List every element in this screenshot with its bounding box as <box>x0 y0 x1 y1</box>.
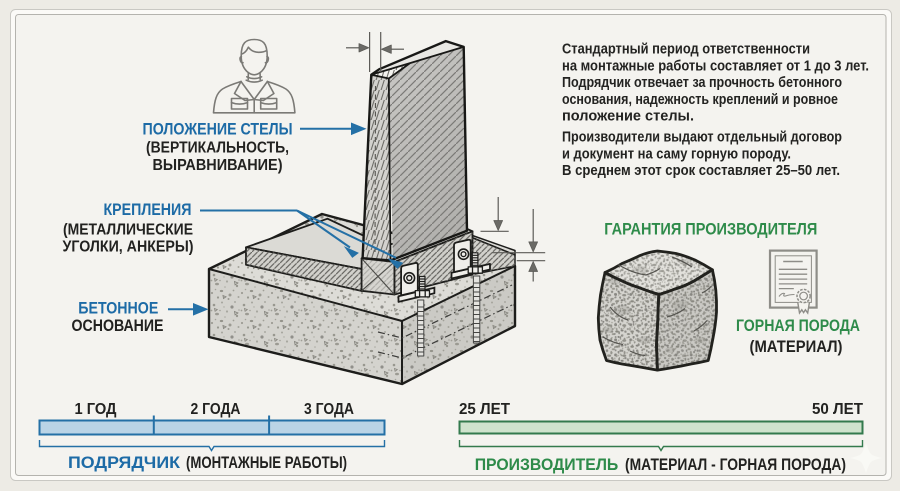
svg-text:В среднем этот срок составляе: В среднем этот срок составляет 25–50 лет… <box>562 163 840 179</box>
svg-text:(МОНТАЖНЫЕ РАБОТЫ): (МОНТАЖНЫЕ РАБОТЫ) <box>186 453 347 472</box>
svg-text:(МАТЕРИАЛ): (МАТЕРИАЛ) <box>750 337 843 356</box>
svg-text:1 ГОД: 1 ГОД <box>75 401 117 418</box>
svg-text:ПОДРЯДЧИК: ПОДРЯДЧИК <box>68 453 181 472</box>
svg-text:КРЕПЛЕНИЯ: КРЕПЛЕНИЯ <box>104 201 192 219</box>
svg-text:ОСНОВАНИЕ: ОСНОВАНИЕ <box>72 317 164 335</box>
svg-text:ПОЛОЖЕНИЕ СТЕЛЫ: ПОЛОЖЕНИЕ СТЕЛЫ <box>143 121 293 139</box>
svg-text:(МАТЕРИАЛ - ГОРНАЯ ПОРОДА): (МАТЕРИАЛ - ГОРНАЯ ПОРОДА) <box>625 455 846 474</box>
svg-text:(МЕТАЛЛИЧЕСКИЕ: (МЕТАЛЛИЧЕСКИЕ <box>63 222 193 239</box>
svg-text:25 ЛЕТ: 25 ЛЕТ <box>459 401 511 418</box>
svg-text:ВЫРАВНИВАНИЕ): ВЫРАВНИВАНИЕ) <box>153 157 283 174</box>
svg-text:ГОРНАЯ ПОРОДА: ГОРНАЯ ПОРОДА <box>736 316 860 335</box>
svg-text:и документ на саму горную поро: и документ на саму горную породу. <box>562 146 791 162</box>
svg-text:УГОЛКИ, АНКЕРЫ): УГОЛКИ, АНКЕРЫ) <box>63 239 194 256</box>
svg-text:3 ГОДА: 3 ГОДА <box>304 401 354 418</box>
svg-text:ГАРАНТИЯ ПРОИЗВОДИТЕЛЯ: ГАРАНТИЯ ПРОИЗВОДИТЕЛЯ <box>604 220 817 239</box>
svg-text:Производители выдают отдельный: Производители выдают отдельный договор <box>562 130 842 146</box>
svg-text:на монтажные работы составляет: на монтажные работы составляет от 1 до 3… <box>562 58 869 74</box>
svg-text:Подрядчик отвечает за прочност: Подрядчик отвечает за прочность бетонног… <box>562 75 842 91</box>
svg-text:(ВЕРТИКАЛЬНОСТЬ,: (ВЕРТИКАЛЬНОСТЬ, <box>146 140 289 157</box>
svg-text:основания, надежность креплени: основания, надежность креплений и ровное <box>562 92 838 108</box>
svg-text:положение стелы.: положение стелы. <box>562 109 694 125</box>
svg-text:50 ЛЕТ: 50 ЛЕТ <box>812 401 864 418</box>
svg-text:БЕТОННОЕ: БЕТОННОЕ <box>78 300 158 318</box>
svg-text:ПРОИЗВОДИТЕЛЬ: ПРОИЗВОДИТЕЛЬ <box>475 455 619 474</box>
svg-text:2 ГОДА: 2 ГОДА <box>191 401 241 418</box>
svg-text:Стандартный период ответственн: Стандартный период ответственности <box>562 42 810 58</box>
